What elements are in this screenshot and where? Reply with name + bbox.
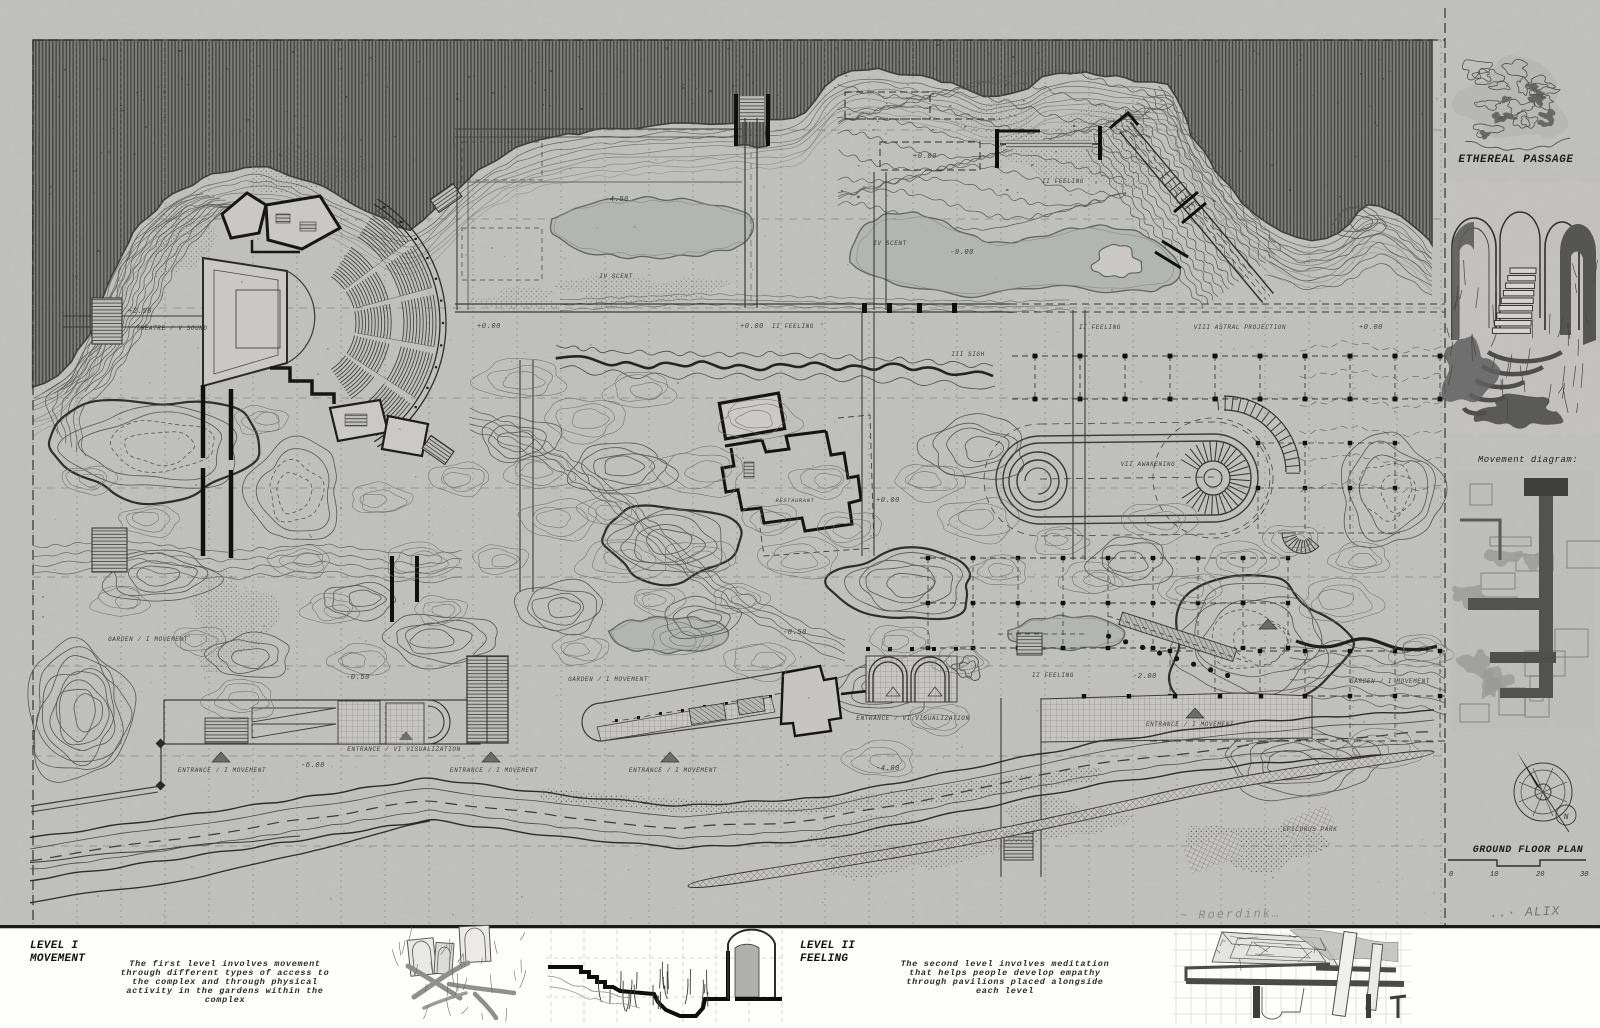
svg-text:Movement diagram:: Movement diagram:	[1478, 455, 1578, 465]
svg-text:+0.00: +0.00	[740, 323, 764, 331]
svg-text:GARDEN / I MOVEMENT: GARDEN / I MOVEMENT	[568, 676, 648, 683]
svg-text:VIII ASTRAL PROJECTION: VIII ASTRAL PROJECTION	[1194, 324, 1286, 331]
svg-text:ETHEREAL PASSAGE: ETHEREAL PASSAGE	[1458, 154, 1573, 166]
svg-text:RESTAURANT: RESTAURANT	[775, 497, 814, 504]
svg-text:II FEELING: II FEELING	[1032, 672, 1074, 679]
svg-text:MOVEMENT: MOVEMENT	[29, 953, 86, 965]
svg-text:-6.00: -6.00	[301, 762, 325, 770]
svg-text:+0.00: +0.00	[913, 153, 937, 161]
svg-text:GARDEN / I MOVEMENT: GARDEN / I MOVEMENT	[1350, 678, 1430, 685]
svg-text:VII AWAKENING: VII AWAKENING	[1121, 461, 1176, 468]
svg-text:+0.00: +0.00	[876, 497, 900, 505]
svg-text:III SIGH: III SIGH	[951, 351, 985, 358]
svg-text:-4.00: -4.00	[876, 765, 900, 773]
svg-text:-9.00: -9.00	[950, 249, 974, 257]
svg-text:~ Roerdink…: ~ Roerdink…	[1180, 906, 1282, 923]
svg-text:..· ALIX: ..· ALIX	[1490, 904, 1561, 921]
svg-text:-0.50: -0.50	[783, 629, 807, 637]
svg-text:+0.00: +0.00	[477, 323, 501, 331]
svg-text:ENTRANCE / I MOVEMENT: ENTRANCE / I MOVEMENT	[178, 767, 266, 774]
svg-text:0: 0	[1449, 871, 1453, 879]
svg-text:complex: complex	[205, 995, 246, 1005]
svg-text:FEELING: FEELING	[800, 953, 848, 965]
svg-text:GARDEN / I MOVEMENT: GARDEN / I MOVEMENT	[108, 636, 188, 643]
svg-text:N: N	[1564, 813, 1569, 822]
svg-text:II FEELING: II FEELING	[772, 323, 814, 330]
svg-text:+0.00: +0.00	[1359, 324, 1383, 332]
svg-text:+2.50: +2.50	[128, 308, 152, 316]
svg-text:II FEELING: II FEELING	[1079, 324, 1121, 331]
svg-text:-2.00: -2.00	[1133, 673, 1157, 681]
svg-text:II FEELING: II FEELING	[1042, 178, 1084, 185]
svg-text:20: 20	[1536, 871, 1544, 879]
svg-text:30: 30	[1580, 871, 1588, 879]
svg-text:ENTRANCE / VI VISUALIZATION: ENTRANCE / VI VISUALIZATION	[347, 746, 460, 753]
svg-text:LEVEL II: LEVEL II	[800, 940, 855, 952]
svg-text:GROUND FLOOR PLAN: GROUND FLOOR PLAN	[1473, 845, 1584, 856]
svg-text:IV SCENT: IV SCENT	[873, 240, 907, 247]
svg-text:IV SCENT: IV SCENT	[599, 273, 633, 280]
svg-text:-0.50: -0.50	[346, 674, 370, 682]
svg-text:each level: each level	[976, 986, 1034, 996]
svg-text:ENTRANCE / I MOVEMENT: ENTRANCE / I MOVEMENT	[629, 767, 717, 774]
svg-text:ENTRANCE / VI VISUALIZATION: ENTRANCE / VI VISUALIZATION	[856, 715, 969, 722]
svg-text:LEVEL I: LEVEL I	[30, 940, 78, 952]
svg-text:ENTRANCE / I MOVEMENT: ENTRANCE / I MOVEMENT	[450, 767, 538, 774]
svg-text:-4.50: -4.50	[605, 196, 629, 204]
svg-text:10: 10	[1490, 871, 1498, 879]
svg-text:EPICURUS PARK: EPICURUS PARK	[1283, 826, 1338, 833]
svg-text:THEATRE / V SOUND: THEATRE / V SOUND	[136, 325, 207, 332]
svg-text:ENTRANCE / I MOVEMENT: ENTRANCE / I MOVEMENT	[1146, 721, 1234, 728]
